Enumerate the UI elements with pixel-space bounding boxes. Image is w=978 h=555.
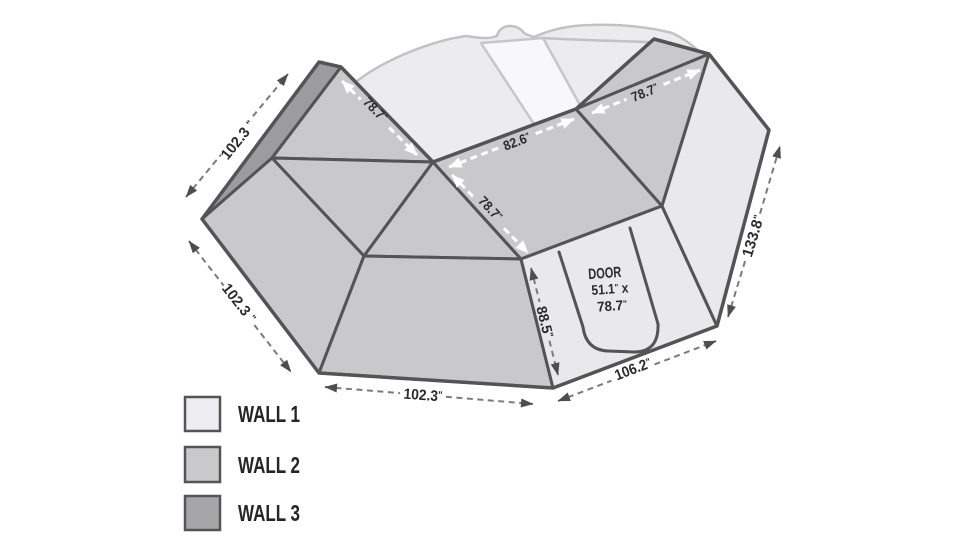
svg-text:WALL 2: WALL 2 [238,452,300,478]
svg-text:102.3": 102.3" [403,386,443,406]
svg-text:WALL 3: WALL 3 [238,500,300,526]
svg-text:51.1" x: 51.1" x [591,279,629,298]
svg-text:78.7": 78.7" [597,297,628,315]
svg-text:WALL 1: WALL 1 [238,401,300,427]
